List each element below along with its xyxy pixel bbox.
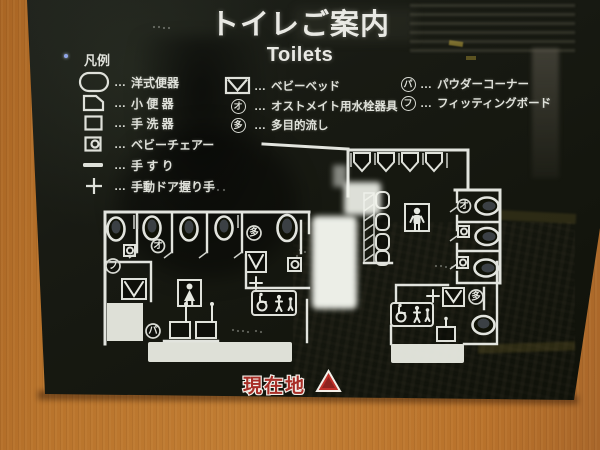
mens-entrance-corridor — [391, 344, 464, 363]
wheelchair-sign — [252, 291, 296, 315]
man-icon — [405, 204, 429, 231]
woman-icon — [178, 280, 201, 306]
powder-corner-area — [107, 303, 143, 341]
multi-sink-letter: 多 — [249, 227, 259, 239]
multi-sink-letter: 多 — [471, 291, 481, 303]
powder-corner-letter: パ — [148, 325, 158, 337]
fitting-board-letter: フ — [108, 261, 118, 272]
mens-section: オ 多 — [348, 150, 500, 363]
sink-icon — [437, 317, 455, 341]
current-location-label: 現在地 — [243, 374, 306, 397]
baby-chair-icon — [457, 226, 469, 268]
toilet-icon — [473, 198, 499, 335]
connecting-wall — [263, 144, 348, 149]
womens-entrance-corridor — [148, 342, 292, 362]
ostomate-letter: オ — [153, 241, 163, 252]
sink-icon — [170, 302, 216, 338]
toilet-guide-sign: トイレご案内 Toilets 凡例 … 洋式便器 … 小 便 器 … 手 洗 器… — [0, 0, 600, 450]
current-location-marker: 現在地 — [243, 371, 340, 397]
stall-door-marks — [129, 252, 242, 258]
wheelchair-sign — [391, 303, 433, 326]
baby-bed-icon — [443, 288, 464, 306]
womens-section: フ オ 多 パ — [105, 212, 309, 362]
floor-plan: フ オ 多 パ — [0, 0, 600, 450]
urinal-icon — [351, 153, 447, 171]
toilet-guide-sign-photo: トイレご案内 Toilets 凡例 … 洋式便器 … 小 便 器 … 手 洗 器… — [0, 0, 600, 450]
ostomate-letter: オ — [459, 201, 469, 212]
door-handle-cross — [427, 290, 439, 302]
